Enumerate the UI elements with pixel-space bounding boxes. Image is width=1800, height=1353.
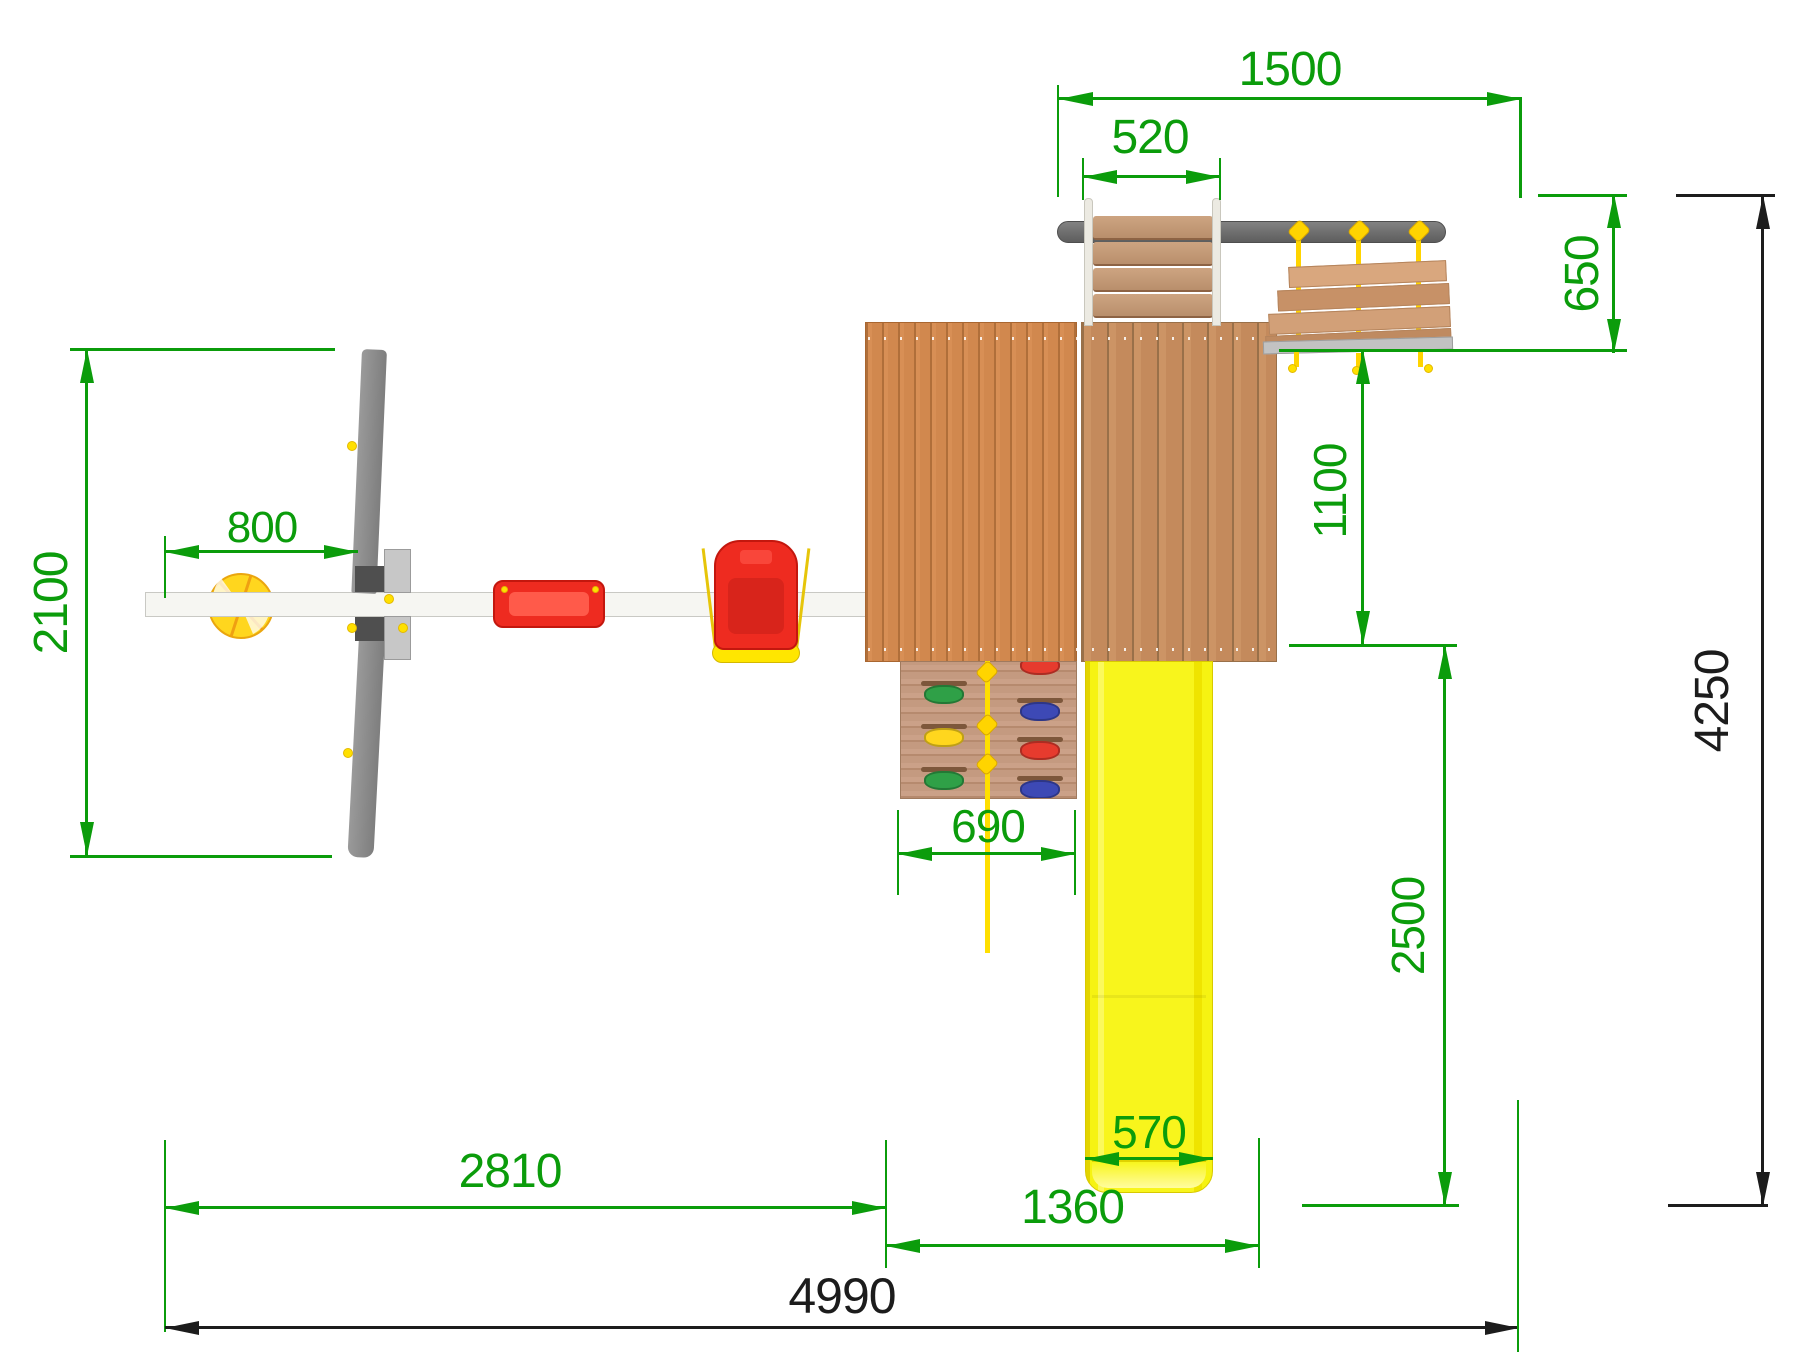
dim-label-1500: 1500 bbox=[1180, 44, 1400, 96]
dim-label-2500: 2500 bbox=[1382, 816, 1434, 1036]
dim-arrow bbox=[1607, 319, 1621, 353]
baby-seat-body bbox=[714, 540, 798, 650]
climb-hold-blue bbox=[1020, 780, 1060, 799]
dim-label-650: 650 bbox=[1557, 199, 1609, 349]
dim-arrow bbox=[165, 1321, 199, 1335]
dim-2100-tick-bottom bbox=[70, 855, 332, 858]
screw-row bbox=[868, 648, 1274, 651]
dim-ext-line bbox=[164, 1140, 166, 1332]
ladder-rung bbox=[1093, 216, 1213, 240]
dim-ext-line bbox=[1082, 158, 1084, 200]
dim-arrow bbox=[80, 349, 94, 383]
dim-4250-line bbox=[1761, 195, 1764, 1206]
platform-right-section bbox=[1081, 322, 1277, 662]
dim-arrow bbox=[886, 1239, 920, 1253]
dim-label-2100: 2100 bbox=[26, 503, 78, 703]
dim-arrow bbox=[1059, 92, 1093, 106]
climb-hold-yellow bbox=[924, 728, 964, 747]
dim-label-800: 800 bbox=[187, 502, 337, 554]
dim-arrow bbox=[1186, 170, 1220, 184]
swing-bracket-lower bbox=[384, 616, 411, 660]
dim-arrow bbox=[1225, 1239, 1259, 1253]
seat-highlight bbox=[509, 592, 589, 616]
dim-ext-line bbox=[1219, 158, 1221, 200]
dim-arrow bbox=[1756, 1172, 1770, 1206]
dim-label-690: 690 bbox=[913, 800, 1063, 852]
dim-ext-line bbox=[1517, 1100, 1519, 1352]
dim-ext-line bbox=[1258, 1138, 1260, 1268]
bolt-dot bbox=[347, 623, 357, 633]
baby-seat-opening bbox=[728, 578, 784, 634]
screw-row bbox=[868, 337, 1274, 340]
ladder-rail-right bbox=[1212, 198, 1221, 326]
dim-label-1100: 1100 bbox=[1304, 391, 1356, 591]
dim-2100-line bbox=[85, 349, 88, 856]
rope-tail-end bbox=[1424, 364, 1433, 373]
swing-bracket-lower-dark bbox=[355, 617, 385, 641]
dim-4250-tick-bottom bbox=[1668, 1204, 1768, 1207]
bolt-dot bbox=[343, 748, 353, 758]
dim-label-570: 570 bbox=[1074, 1106, 1224, 1158]
dim-arrow bbox=[1607, 194, 1621, 228]
ladder-rung bbox=[1093, 268, 1213, 292]
rope-tail bbox=[1418, 352, 1423, 367]
bolt-dot bbox=[347, 441, 357, 451]
bolt-dot bbox=[384, 594, 394, 604]
ladder-rung bbox=[1093, 294, 1213, 318]
platform-left-section bbox=[865, 322, 1077, 662]
dim-ext-line bbox=[164, 536, 166, 598]
dim-arrow bbox=[1485, 1321, 1519, 1335]
swing-bracket-upper bbox=[384, 549, 411, 593]
dim-ext-line bbox=[1074, 810, 1076, 895]
dim-arrow bbox=[1356, 611, 1370, 645]
climb-hold-blue bbox=[1020, 702, 1060, 721]
dim-1500-line bbox=[1059, 97, 1521, 100]
dim-arrow bbox=[1756, 195, 1770, 229]
dim-1360-line bbox=[886, 1244, 1259, 1247]
slide-seam bbox=[1092, 995, 1206, 998]
ladder-rung bbox=[1093, 242, 1213, 266]
dim-2100-tick-top bbox=[70, 348, 335, 351]
climb-hold-red bbox=[1020, 661, 1060, 675]
dim-label-4250: 4250 bbox=[1687, 581, 1739, 821]
swing-bracket-upper-dark bbox=[355, 566, 385, 592]
playground-dimension-drawing: 1500 520 650 2100 800 1100 2500 4250 690 bbox=[0, 0, 1800, 1353]
dim-1100-line bbox=[1361, 350, 1364, 645]
rope-tail-end bbox=[1288, 364, 1297, 373]
baby-swing-seat bbox=[706, 540, 806, 664]
flat-swing-seat bbox=[493, 580, 605, 628]
dim-label-2810: 2810 bbox=[385, 1146, 635, 1198]
dim-2500-tick-bottom bbox=[1302, 1204, 1459, 1207]
dim-arrow bbox=[1356, 350, 1370, 384]
dim-ext-line bbox=[1519, 97, 1522, 198]
dim-2500-line bbox=[1443, 645, 1446, 1206]
seat-rope-dot bbox=[592, 586, 599, 593]
ref-line-bridge-bottom bbox=[1279, 349, 1627, 352]
dim-label-4990: 4990 bbox=[717, 1270, 967, 1322]
swing-leg-lower bbox=[347, 617, 386, 858]
climb-hold-red bbox=[1020, 741, 1060, 760]
dim-arrow bbox=[852, 1201, 886, 1215]
baby-seat-back bbox=[740, 550, 772, 564]
climb-hold-green bbox=[924, 771, 964, 790]
dim-arrow bbox=[165, 1201, 199, 1215]
seat-rope-dot bbox=[501, 586, 508, 593]
dim-ext-line bbox=[897, 810, 899, 895]
dim-arrow bbox=[1438, 645, 1452, 679]
dim-1100-tick-bottom bbox=[1289, 644, 1457, 647]
climb-hold-green bbox=[924, 685, 964, 704]
dim-arrow bbox=[1487, 92, 1521, 106]
dim-2810-line bbox=[165, 1206, 886, 1209]
dim-label-1360: 1360 bbox=[960, 1182, 1185, 1234]
bolt-dot bbox=[398, 623, 408, 633]
ladder-rail-left bbox=[1084, 198, 1093, 326]
dim-arrow bbox=[1438, 1172, 1452, 1206]
dim-ext-line bbox=[1057, 85, 1059, 197]
dim-4990-line bbox=[165, 1326, 1519, 1329]
dim-arrow bbox=[80, 822, 94, 856]
dim-label-520: 520 bbox=[1075, 112, 1225, 164]
dim-arrow bbox=[1083, 170, 1117, 184]
